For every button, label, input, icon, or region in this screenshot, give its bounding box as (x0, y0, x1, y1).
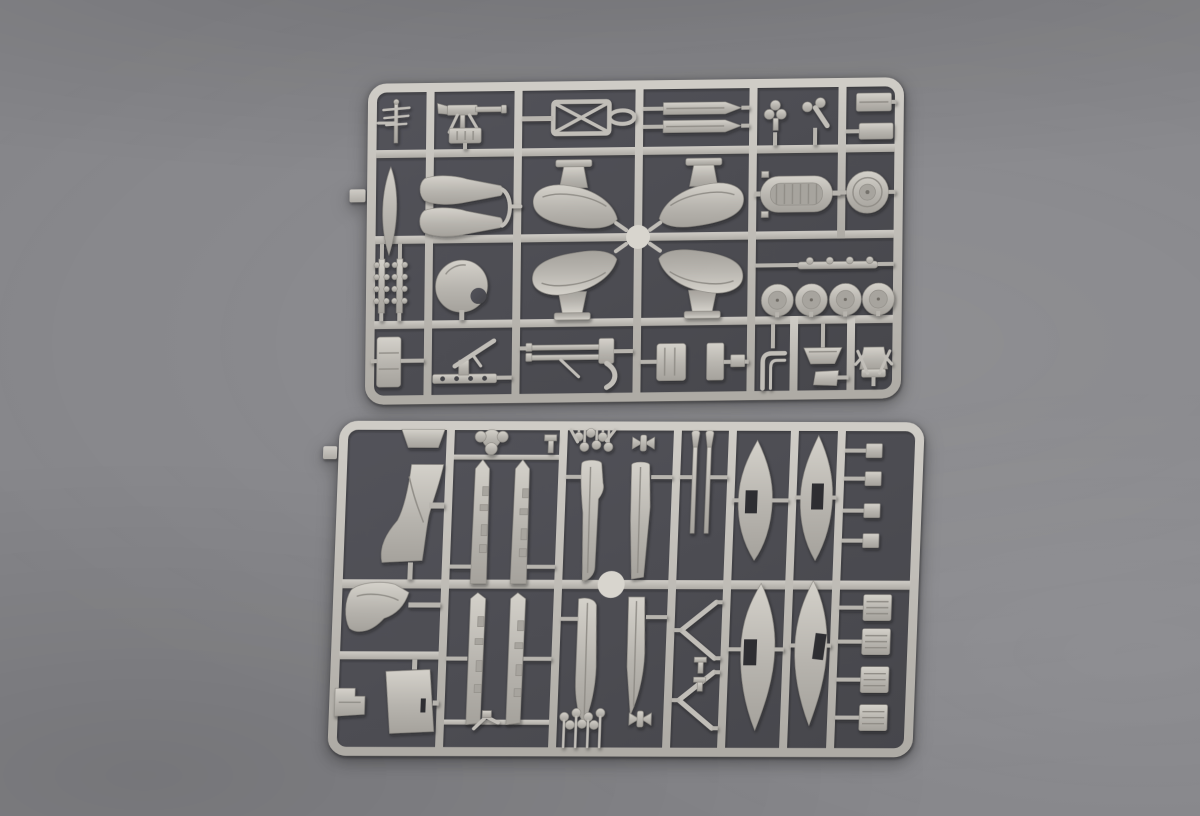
rail-segment (339, 651, 442, 659)
trapezoid-plate-part (401, 429, 445, 447)
photo-model-kit-sprues (40, 16, 1200, 816)
sprue-bottom (323, 416, 930, 762)
rail-segment (837, 86, 847, 238)
rail-segment (342, 579, 910, 589)
sprue-side-tab (349, 189, 365, 202)
sprue-bottom-svg (323, 416, 930, 762)
rail-segment (454, 455, 559, 460)
sprue-top-svg (360, 73, 908, 410)
sprue-side-tab (323, 446, 337, 459)
rail-segment (789, 316, 798, 391)
sprue-top (360, 73, 908, 410)
hatch-rect-part (856, 93, 896, 111)
